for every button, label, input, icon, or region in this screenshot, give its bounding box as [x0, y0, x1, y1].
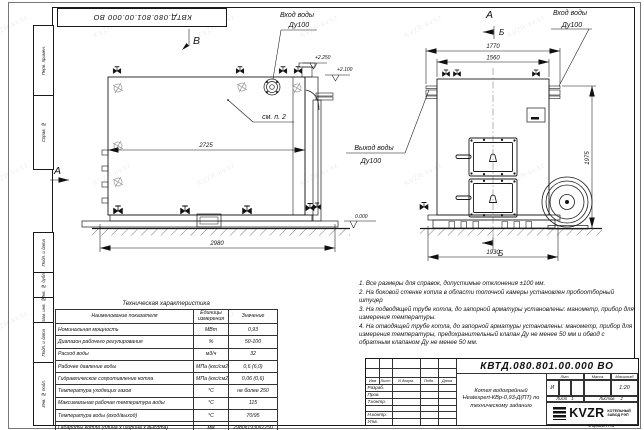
- blower-fan: [542, 177, 592, 229]
- inlet-label-front-1: Вход воды: [553, 9, 588, 17]
- role-utv: Утв.: [366, 418, 392, 425]
- table-row: Гидравлическое сопротивление котлаМПа (к…: [56, 373, 278, 385]
- dim-2725: 2725: [198, 143, 213, 149]
- table-row: Диапазон рабочего регулирования%50-100: [56, 336, 278, 348]
- dim-1770: 1770: [486, 44, 500, 50]
- table-row: Температура уходящих газов°Сне более 250: [56, 385, 278, 397]
- dim-1975: 1975: [585, 151, 591, 165]
- change-col-podp: Подп.: [420, 377, 438, 384]
- doc-number: КВТД.080.801.00.000 ВО: [456, 359, 638, 373]
- table-row: Расход водым3/ч32: [56, 348, 278, 360]
- role-prov: Пров.: [366, 391, 392, 398]
- lit-cell-3: [571, 380, 584, 396]
- dim-2980: 2980: [209, 241, 224, 247]
- drawing-sheet: KVZR-kv.kz KVZR-kv.kz KVZR-kv.kz KVZR-kv…: [0, 0, 644, 430]
- elev-2100: +2.100: [337, 67, 353, 73]
- table-row: Максимальная рабочая температура воды°С1…: [56, 397, 278, 409]
- role-nkontr: Н.контр.: [366, 411, 392, 418]
- outlet-label-2: Ду100: [360, 158, 381, 165]
- inlet-label-front-2: Ду100: [561, 22, 582, 29]
- table-row: Рабочее давление водыМПа (кгс/см2)0,6 (6…: [56, 360, 278, 372]
- inlet-label-side-1: Вход воды: [280, 11, 315, 19]
- change-col-izm: Изм: [366, 377, 379, 384]
- side-view: [82, 63, 350, 236]
- see-note-label: см. п. 2: [262, 114, 286, 121]
- mass-value: [584, 380, 611, 396]
- side-view-dims: [50, 29, 376, 252]
- section-b-top: Б: [499, 28, 504, 37]
- scale-header: Масштаб: [611, 373, 638, 380]
- format-label: Формат А3: [588, 424, 614, 429]
- lit-value: И: [546, 380, 559, 396]
- elev-0000: 0.000: [355, 214, 368, 220]
- role-razrab: Разраб.: [366, 384, 392, 391]
- tech-table: Наименование показателя Единицы измерени…: [55, 309, 278, 430]
- inlet-label-side-2: Ду100: [288, 22, 309, 29]
- elev-2250: +2.250: [315, 55, 331, 61]
- note-4: 4. На отводящей трубе котла, до запорной…: [359, 323, 634, 347]
- mass-header: Масса: [584, 373, 611, 380]
- section-b-bottom: Б: [498, 249, 503, 258]
- title-block: Изм Лист N докум. Подп. Дата Разраб. Про…: [365, 358, 639, 426]
- outlet-label-1: Выход воды: [354, 144, 394, 152]
- tech-table-title: Техническая характеристика: [55, 300, 277, 307]
- change-col-data: Дата: [438, 377, 456, 384]
- view-label-b: В: [193, 35, 200, 47]
- drawing-name: Котел водогрейный Heatexpert-КВр-0,93-Д(…: [456, 373, 546, 425]
- manufacturer-logo: KVZR КОТЕЛЬНЫЙ ЗАВОД РЭП: [546, 402, 638, 425]
- change-col-docnum: N докум.: [392, 377, 420, 384]
- kvzr-logo-text: KVZR: [569, 406, 604, 420]
- kvzr-logo-subtext: КОТЕЛЬНЫЙ ЗАВОД РЭП: [607, 409, 630, 417]
- table-row: Температура воды (вход/выход)°С70/95: [56, 410, 278, 422]
- kvzr-logo-icon: [553, 407, 566, 420]
- table-row: Номинальная мощностьМВт0,93: [56, 324, 278, 336]
- section-label-a: А: [53, 165, 61, 177]
- lit-header: Лит.: [546, 373, 584, 380]
- notes: 1. Все размеры для справок, допустимые о…: [359, 280, 634, 349]
- front-view: [420, 68, 602, 244]
- dim-1560: 1560: [486, 56, 500, 62]
- role-tkontr: Т.контр.: [366, 398, 392, 405]
- view-label-a: А: [485, 9, 493, 21]
- note-3: 3. На подводящей трубе котла, до запорно…: [359, 306, 634, 322]
- inlet-flange: [264, 79, 280, 95]
- scale-value: 1:20: [611, 380, 638, 396]
- table-row: Габариты котла (длина х ширина х высота)…: [56, 422, 278, 430]
- note-1: 1. Все размеры для справок, допустимые о…: [359, 280, 634, 288]
- note-2: 2. На боковой стенке котла в области топ…: [359, 289, 634, 305]
- role-empty: [366, 405, 392, 412]
- tech-table-header: Наименование показателя Единицы измерени…: [56, 310, 278, 324]
- change-col-list: Лист: [379, 377, 392, 384]
- lit-cell-2: [559, 380, 572, 396]
